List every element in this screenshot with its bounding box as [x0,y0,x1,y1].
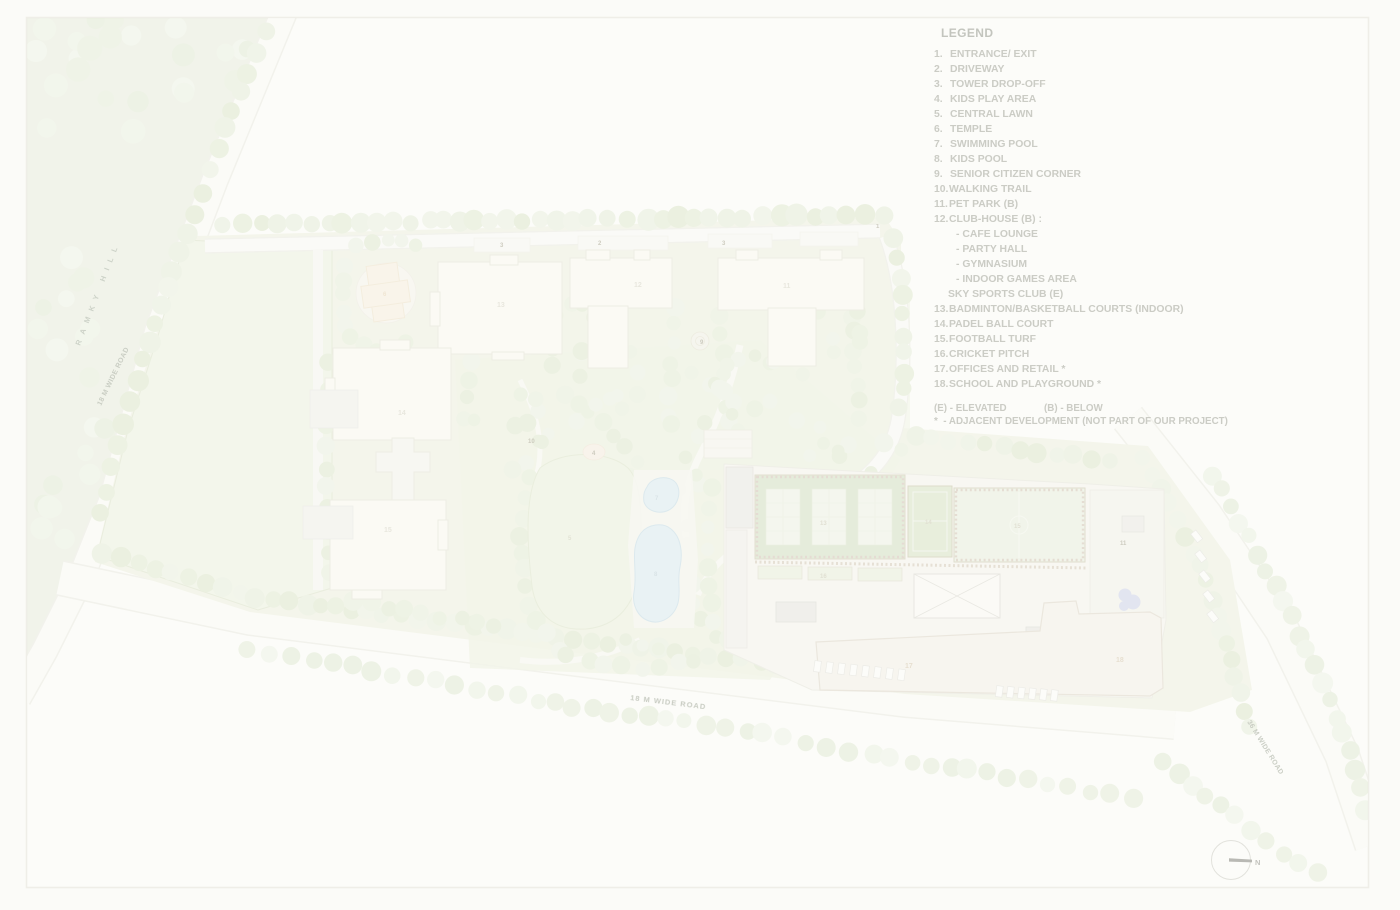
svg-text:- GYMNASIUM: - GYMNASIUM [956,259,1027,270]
svg-text:* - ADJACENT DEVELOPMENT (NOT: * - ADJACENT DEVELOPMENT (NOT PART OF OU… [934,416,1228,427]
svg-text:PET PARK (B): PET PARK (B) [949,199,1018,210]
svg-text:(E) - ELEVATED: (E) - ELEVATED [934,403,1007,414]
svg-text:SWIMMING POOL: SWIMMING POOL [950,139,1038,150]
svg-text:WALKING TRAIL: WALKING TRAIL [949,184,1032,195]
svg-text:7.: 7. [934,139,943,150]
svg-text:10.: 10. [934,184,949,195]
svg-text:18: 18 [1116,657,1124,664]
svg-text:CLUB-HOUSE (B) :: CLUB-HOUSE (B) : [949,214,1042,225]
svg-text:15: 15 [384,527,392,534]
svg-text:OFFICES AND RETAIL *: OFFICES AND RETAIL * [949,364,1066,375]
svg-text:16.: 16. [934,349,949,360]
svg-text:10: 10 [528,439,535,445]
svg-text:13: 13 [497,302,505,309]
svg-text:2.: 2. [934,64,943,75]
svg-text:17: 17 [905,663,913,670]
svg-text:KIDS POOL: KIDS POOL [950,154,1008,165]
svg-text:ENTRANCE/ EXIT: ENTRANCE/ EXIT [950,49,1037,60]
svg-text:15.: 15. [934,334,949,345]
svg-text:15: 15 [1014,524,1021,530]
svg-text:SCHOOL AND PLAYGROUND *: SCHOOL AND PLAYGROUND * [949,379,1102,390]
svg-text:LEGEND: LEGEND [941,26,993,40]
svg-text:17.: 17. [934,364,949,375]
svg-text:SKY SPORTS CLUB (E): SKY SPORTS CLUB (E) [948,289,1063,300]
svg-text:- PARTY HALL: - PARTY HALL [956,244,1028,255]
svg-text:12.: 12. [934,214,949,225]
svg-text:DRIVEWAY: DRIVEWAY [950,64,1005,75]
svg-text:FOOTBALL TURF: FOOTBALL TURF [949,334,1036,345]
svg-text:(B) - BELOW: (B) - BELOW [1044,403,1104,414]
svg-text:18.: 18. [934,379,949,390]
svg-text:14.: 14. [934,319,949,330]
svg-text:14: 14 [398,410,406,417]
svg-text:8.: 8. [934,154,943,165]
svg-text:KIDS PLAY AREA: KIDS PLAY AREA [950,94,1037,105]
svg-text:BADMINTON/BASKETBALL COURTS (I: BADMINTON/BASKETBALL COURTS (INDOOR) [949,304,1184,315]
svg-text:11.: 11. [934,199,948,210]
svg-text:13: 13 [820,521,827,527]
svg-text:PADEL BALL COURT: PADEL BALL COURT [949,319,1054,330]
svg-text:4.: 4. [934,94,943,105]
svg-text:TEMPLE: TEMPLE [950,124,992,135]
svg-text:SENIOR CITIZEN CORNER: SENIOR CITIZEN CORNER [950,169,1082,180]
svg-text:5.: 5. [934,109,943,120]
svg-text:9.: 9. [934,169,943,180]
svg-text:6.: 6. [934,124,943,135]
svg-text:TOWER DROP-OFF: TOWER DROP-OFF [950,79,1046,90]
svg-text:- INDOOR GAMES AREA: - INDOOR GAMES AREA [956,274,1077,285]
svg-text:11: 11 [783,283,791,290]
svg-text:1.: 1. [934,49,943,60]
svg-text:CENTRAL LAWN: CENTRAL LAWN [950,109,1033,120]
svg-text:3.: 3. [934,79,943,90]
svg-text:13.: 13. [934,304,949,315]
svg-text:12: 12 [634,282,642,289]
svg-text:- CAFE LOUNGE: - CAFE LOUNGE [956,229,1038,240]
svg-text:CRICKET PITCH: CRICKET PITCH [949,349,1029,360]
svg-text:14: 14 [925,520,932,526]
svg-text:16: 16 [820,574,827,580]
svg-text:11: 11 [1120,541,1127,547]
svg-text:N: N [1255,858,1260,867]
